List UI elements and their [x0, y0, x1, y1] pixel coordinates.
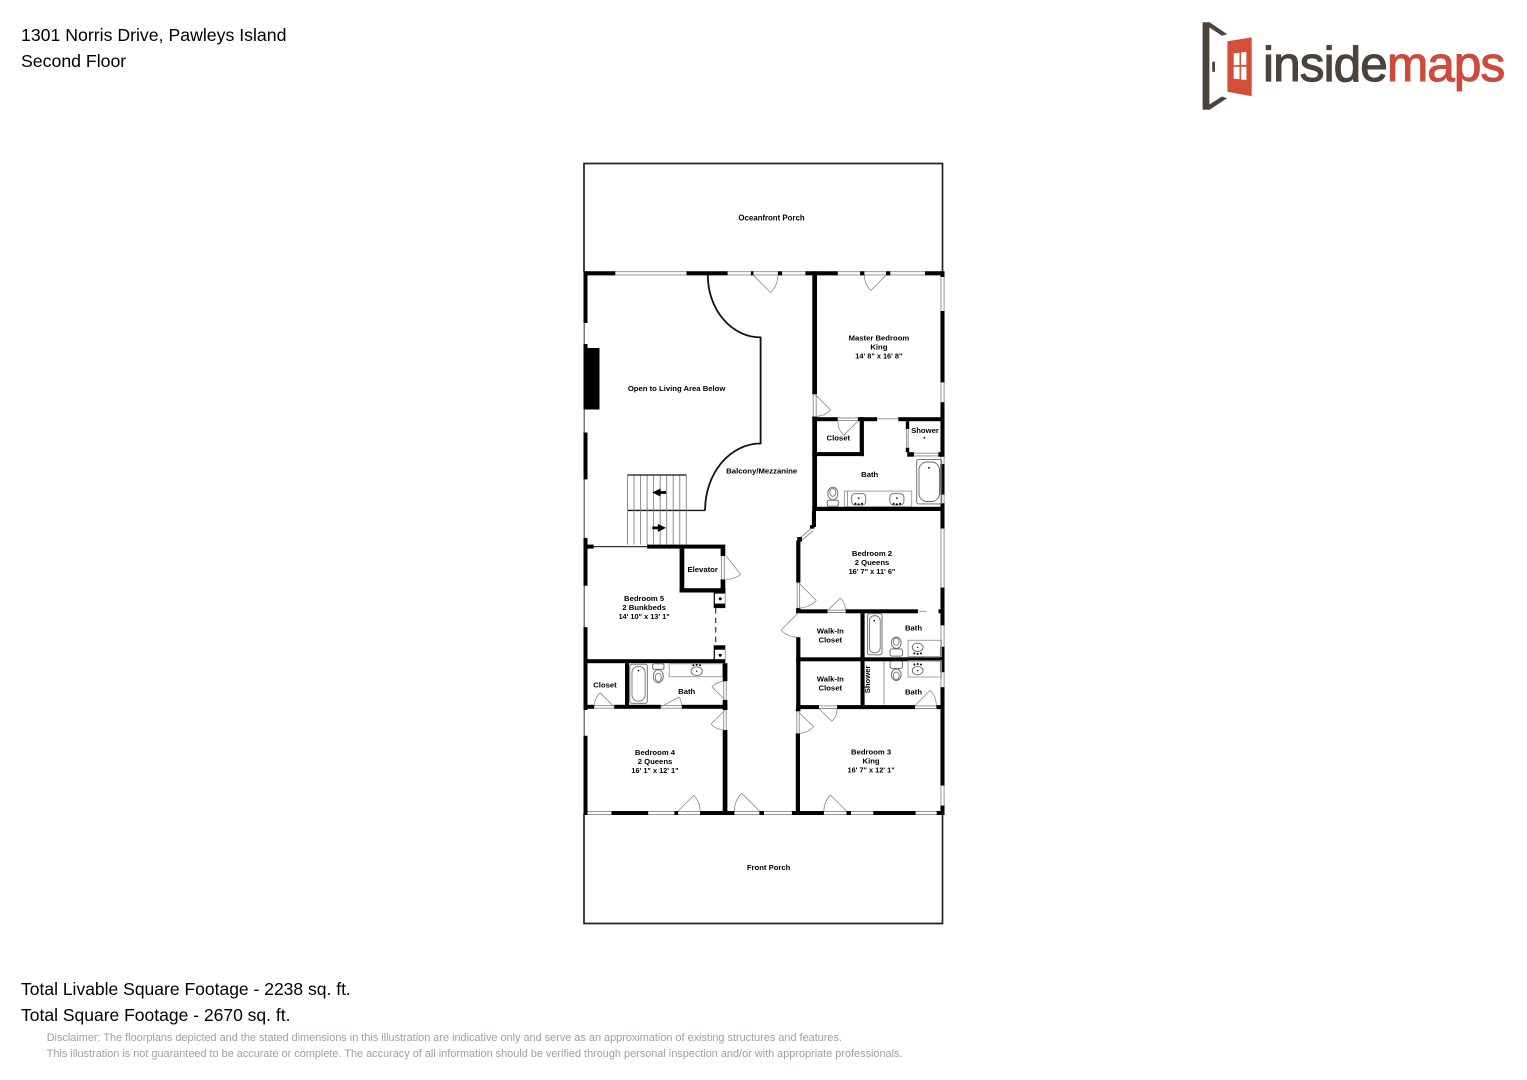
- svg-text:16' 1" x 12' 1": 16' 1" x 12' 1": [631, 766, 678, 775]
- svg-text:Closet: Closet: [827, 433, 851, 442]
- svg-text:2 Queens: 2 Queens: [638, 757, 673, 766]
- svg-text:Balcony/Mezzanine: Balcony/Mezzanine: [726, 467, 798, 476]
- svg-text:Bedroom 5: Bedroom 5: [624, 594, 665, 603]
- svg-text:Oceanfront Porch: Oceanfront Porch: [738, 214, 804, 223]
- svg-text:Shower: Shower: [863, 666, 872, 694]
- svg-text:Master Bedroom: Master Bedroom: [849, 334, 910, 343]
- svg-text:Front Porch: Front Porch: [747, 863, 791, 872]
- svg-text:Elevator: Elevator: [688, 565, 718, 574]
- svg-text:Shower: Shower: [911, 426, 939, 435]
- svg-text:King: King: [863, 757, 880, 766]
- svg-text:Closet: Closet: [819, 635, 843, 644]
- svg-text:insidemaps: insidemaps: [1263, 37, 1504, 92]
- svg-text:Walk-In: Walk-In: [817, 675, 844, 684]
- svg-text:Bath: Bath: [678, 687, 695, 696]
- svg-text:Bedroom 4: Bedroom 4: [635, 748, 676, 757]
- svg-text:14' 8" x 16' 8": 14' 8" x 16' 8": [855, 351, 902, 360]
- svg-text:14' 10" x 13' 1": 14' 10" x 13' 1": [618, 612, 669, 621]
- svg-text:16' 7" x 11' 6": 16' 7" x 11' 6": [849, 567, 896, 576]
- svg-text:Walk-In: Walk-In: [817, 627, 844, 636]
- svg-text:Bedroom 2: Bedroom 2: [852, 549, 892, 558]
- svg-text:Bath: Bath: [905, 623, 922, 632]
- svg-text:Bath: Bath: [861, 470, 878, 479]
- svg-text:King: King: [870, 342, 887, 351]
- svg-text:Open to Living Area Below: Open to Living Area Below: [628, 384, 726, 393]
- svg-text:Closet: Closet: [819, 683, 843, 692]
- svg-text:16' 7" x 12' 1": 16' 7" x 12' 1": [847, 766, 894, 775]
- svg-text:2 Bunkbeds: 2 Bunkbeds: [622, 603, 666, 612]
- svg-text:Closet: Closet: [593, 680, 617, 689]
- svg-text:Bedroom 3: Bedroom 3: [851, 748, 891, 757]
- svg-text:Bath: Bath: [905, 687, 922, 696]
- svg-text:2 Queens: 2 Queens: [855, 558, 890, 567]
